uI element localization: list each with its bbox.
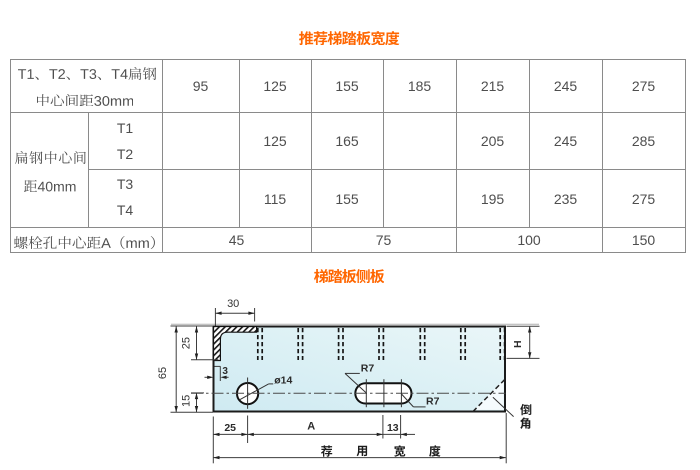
svg-text:30: 30 xyxy=(227,298,239,310)
svg-text:25: 25 xyxy=(224,422,236,434)
svg-text:R7: R7 xyxy=(426,395,440,407)
svg-text:25: 25 xyxy=(180,337,192,349)
svg-text:65: 65 xyxy=(157,367,169,379)
svg-text:A: A xyxy=(307,420,315,432)
svg-text:15: 15 xyxy=(180,395,192,407)
svg-text:13: 13 xyxy=(387,422,399,434)
svg-text:H: H xyxy=(512,340,524,348)
svg-text:3: 3 xyxy=(222,366,228,377)
svg-text:R7: R7 xyxy=(361,362,375,374)
svg-text:ø14: ø14 xyxy=(274,374,292,386)
